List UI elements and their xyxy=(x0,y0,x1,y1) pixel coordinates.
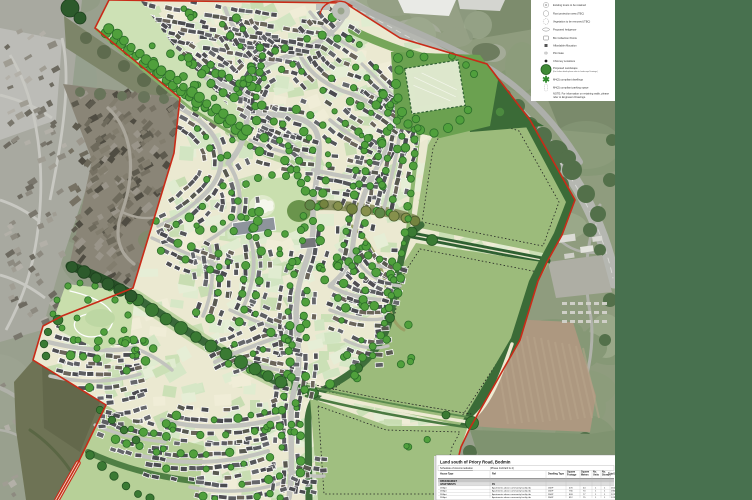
svg-text:Proposed hedgerow: Proposed hedgerow xyxy=(553,28,576,32)
svg-text:Plot Gate: Plot Gate xyxy=(553,51,564,55)
svg-text:⟪⟫: ⟪⟫ xyxy=(544,51,548,55)
svg-text:Apartments above community fac: Apartments above community facility tbc xyxy=(492,496,532,499)
svg-text:Units: Units xyxy=(593,473,600,476)
svg-text:refer to Engineers Drawings.: refer to Engineers Drawings. xyxy=(553,95,586,99)
svg-text:1B Apt: 1B Apt xyxy=(440,490,447,493)
svg-text:2B4P: 2B4P xyxy=(548,497,554,499)
svg-text:M4(2) compliant dwellings: M4(2) compliant dwellings xyxy=(553,78,584,82)
svg-text:2B Apt: 2B Apt xyxy=(440,496,447,499)
svg-text:(Phase 1/2/2a/3 & 4): (Phase 1/2/2a/3 & 4) xyxy=(490,466,514,470)
svg-text:(For further details please re: (For further details please refer to Lan… xyxy=(553,70,598,73)
svg-text:Vegetation to be removed (TBC): Vegetation to be removed (TBC) xyxy=(553,20,590,24)
svg-text:Existing tree/s to be retained: Existing tree/s to be retained xyxy=(553,3,586,7)
svg-text:Apartments above community fac: Apartments above community facility tbc xyxy=(492,486,532,489)
svg-text:Apartments above community fac: Apartments above community facility tbc xyxy=(492,490,532,493)
svg-text:Ref: Ref xyxy=(492,473,496,476)
svg-text:Root protection area (TBC): Root protection area (TBC) xyxy=(553,12,584,16)
svg-text:OPEN MARKET: OPEN MARKET xyxy=(440,480,458,483)
svg-text:Proposed Landscape: Proposed Landscape xyxy=(553,66,578,70)
svg-text:Footage: Footage xyxy=(567,473,577,476)
svg-text:Metres: Metres xyxy=(581,473,589,476)
svg-text:Chimney Locations: Chimney Locations xyxy=(553,59,576,63)
svg-text:Dwelling Type: Dwelling Type xyxy=(548,473,565,476)
svg-text:Land south of Priory Road, Bod: Land south of Priory Road, Bodmin xyxy=(440,460,511,465)
svg-text:M4(2) compliant parking space: M4(2) compliant parking space xyxy=(553,86,589,90)
svg-text:✱: ✱ xyxy=(542,75,550,85)
svg-text:Affordable Allocation: Affordable Allocation xyxy=(553,44,577,48)
svg-text:2B Apt: 2B Apt xyxy=(440,493,447,496)
svg-text:Bin Collection Points: Bin Collection Points xyxy=(553,36,577,40)
svg-text:Apartments above community fac: Apartments above community facility tbc xyxy=(492,493,532,496)
svg-text:Schedule of Accommodation: Schedule of Accommodation xyxy=(440,466,473,470)
svg-text:House Type: House Type xyxy=(440,473,454,476)
svg-text:1B Apt: 1B Apt xyxy=(440,486,447,489)
